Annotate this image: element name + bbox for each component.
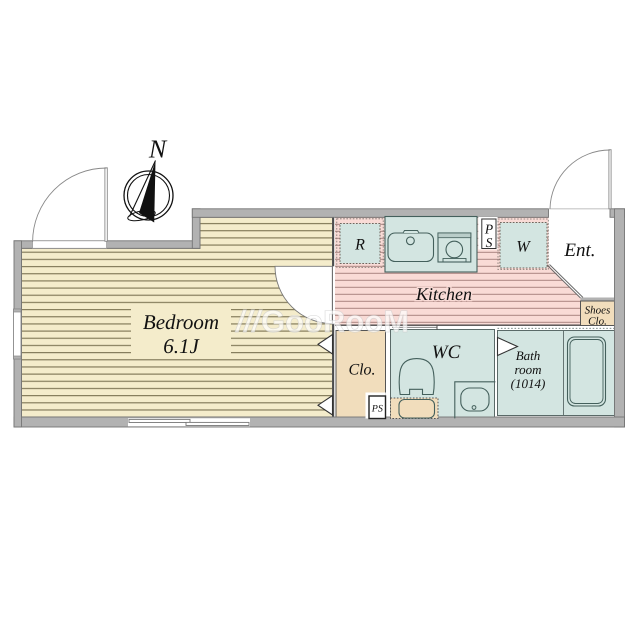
- svg-text:N: N: [148, 135, 168, 164]
- svg-text:Bath: Bath: [516, 348, 541, 363]
- svg-text:room: room: [515, 362, 542, 377]
- svg-text:6.1J: 6.1J: [163, 334, 200, 358]
- svg-text:R: R: [354, 237, 365, 254]
- svg-text:PS: PS: [371, 404, 383, 415]
- svg-text:GooRooM: GooRooM: [261, 304, 409, 339]
- svg-text:Ent.: Ent.: [563, 240, 595, 261]
- svg-text:(1014): (1014): [511, 376, 546, 391]
- svg-text:S: S: [486, 235, 493, 250]
- svg-text:Clo.: Clo.: [588, 316, 607, 328]
- svg-text:Kitchen: Kitchen: [415, 284, 472, 304]
- svg-text:W: W: [516, 239, 531, 256]
- svg-text:Clo.: Clo.: [348, 362, 375, 379]
- svg-text:Bedroom: Bedroom: [143, 310, 219, 334]
- svg-text:///: ///: [234, 306, 262, 339]
- svg-text:WC: WC: [432, 342, 461, 363]
